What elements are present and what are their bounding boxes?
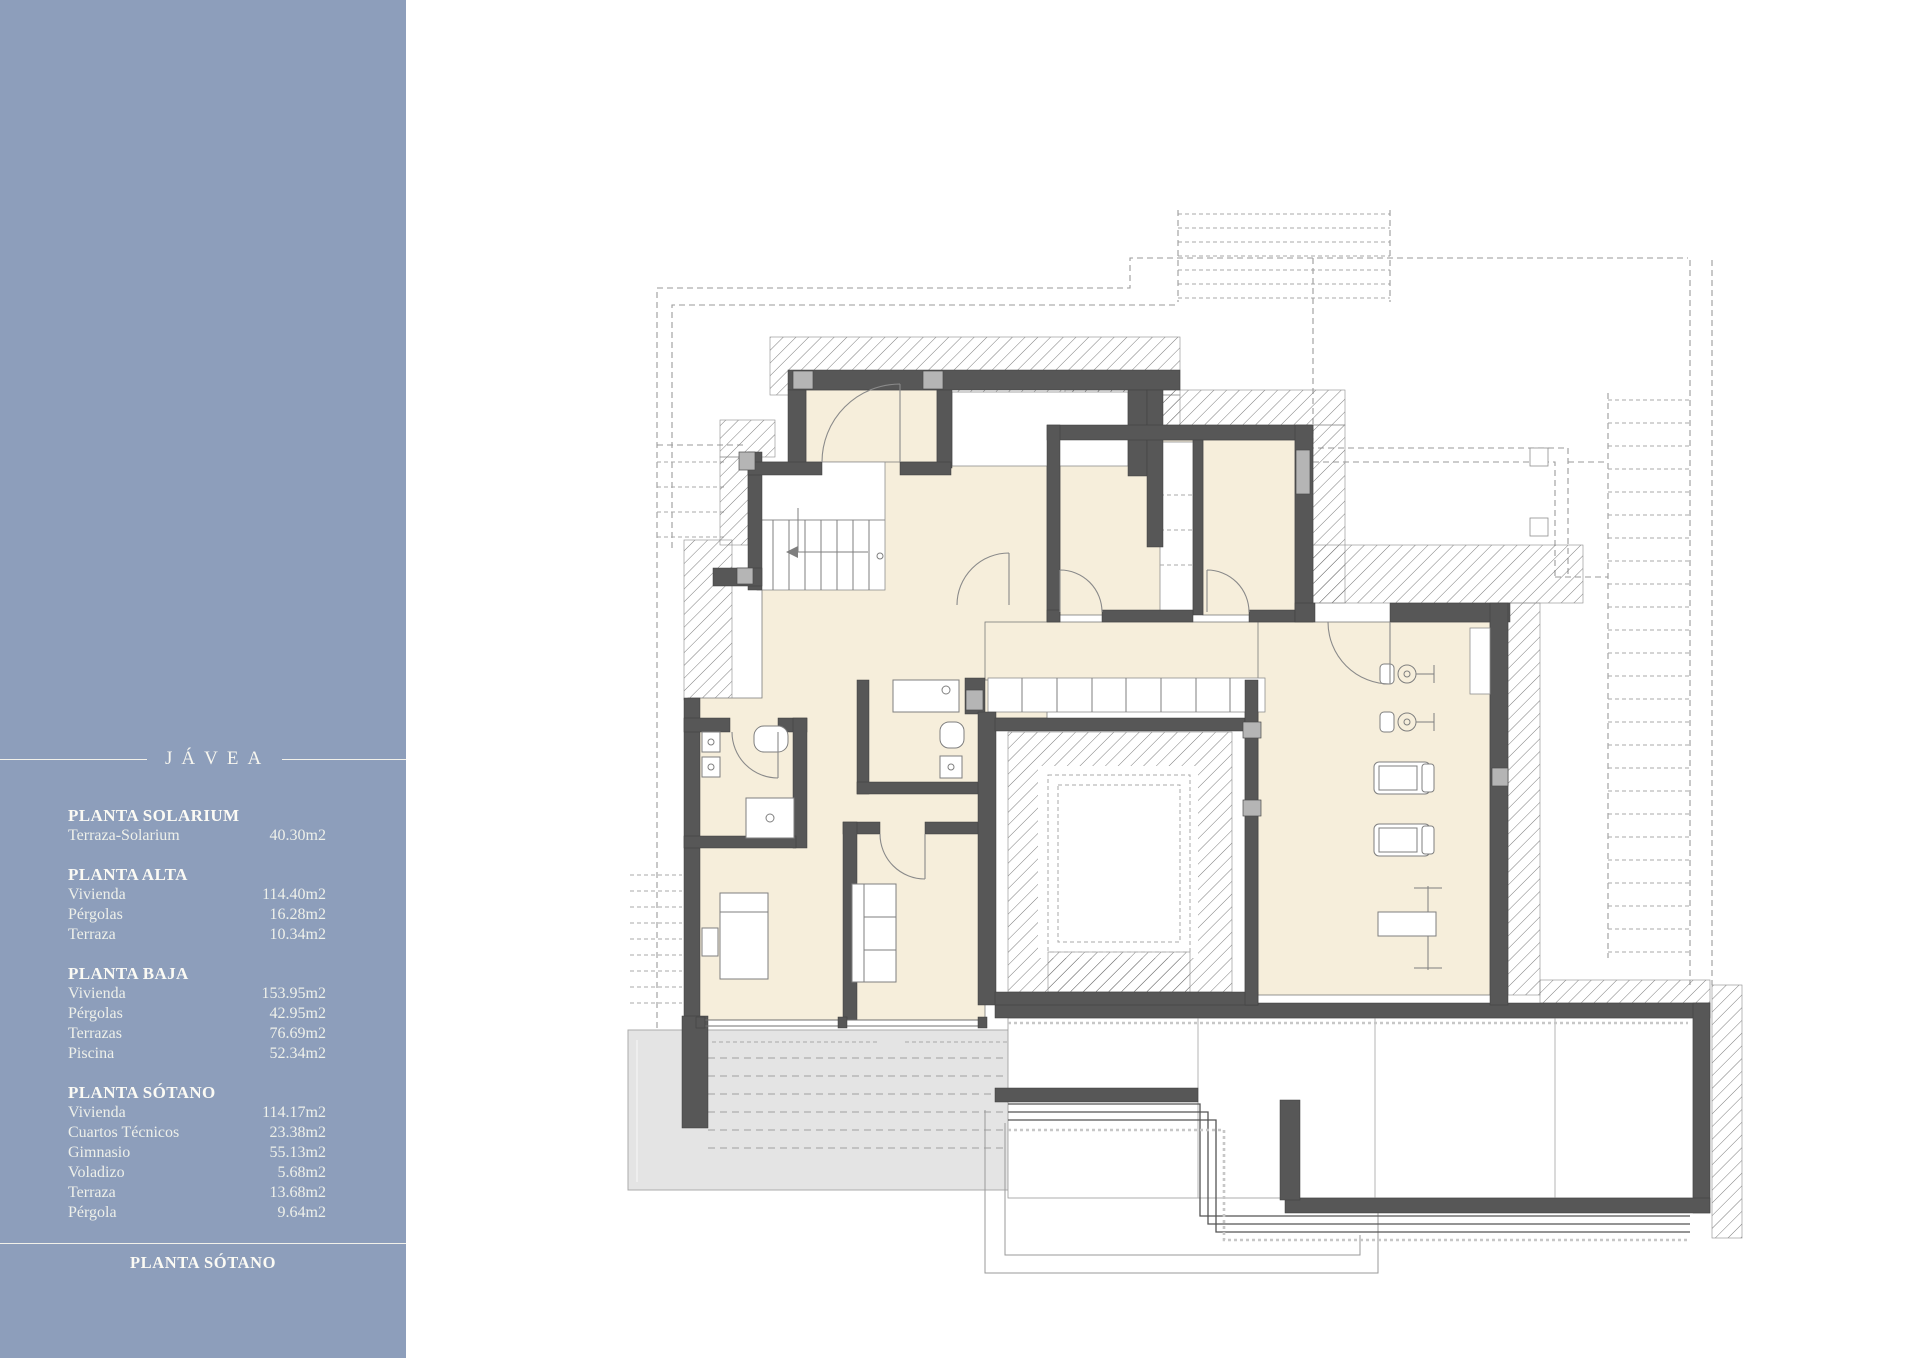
area-label: Terraza: [68, 925, 116, 945]
area-row: Pérgolas 42.95m2: [68, 1004, 326, 1024]
treadmill-icon: [1374, 762, 1434, 794]
area-value: 114.40m2: [262, 885, 326, 905]
area-row: Terraza 13.68m2: [68, 1183, 326, 1203]
area-row: Piscina 52.34m2: [68, 1044, 326, 1064]
area-value: 40.30m2: [270, 826, 326, 846]
section-heading: PLANTA SÓTANO: [68, 1083, 326, 1103]
area-label: Terraza: [68, 1183, 116, 1203]
project-title: JÁVEA: [147, 748, 282, 770]
area-row: Pérgolas 16.28m2: [68, 905, 326, 925]
area-value: 10.34m2: [270, 925, 326, 945]
area-label: Vivienda: [68, 1103, 126, 1123]
area-row: Terraza-Solarium 40.30m2: [68, 826, 326, 846]
area-row: Vivienda 153.95m2: [68, 984, 326, 1004]
area-row: Terrazas 76.69m2: [68, 1024, 326, 1044]
section-heading: PLANTA ALTA: [68, 865, 326, 885]
area-label: Terraza-Solarium: [68, 826, 180, 846]
area-label: Voladizo: [68, 1163, 125, 1183]
area-value: 42.95m2: [270, 1004, 326, 1024]
area-label: Gimnasio: [68, 1143, 130, 1163]
area-row: Gimnasio 55.13m2: [68, 1143, 326, 1163]
area-row: Terraza 10.34m2: [68, 925, 326, 945]
area-value: 13.68m2: [270, 1183, 326, 1203]
area-value: 16.28m2: [270, 905, 326, 925]
area-label: Pérgolas: [68, 905, 123, 925]
area-schedule: PLANTA SOLARIUM Terraza-Solarium 40.30m2…: [68, 806, 326, 1242]
footer-divider: [0, 1243, 406, 1244]
area-value: 153.95m2: [262, 984, 326, 1004]
section-planta-solarium: PLANTA SOLARIUM Terraza-Solarium 40.30m2: [68, 806, 326, 846]
area-row: Pérgola 9.64m2: [68, 1203, 326, 1223]
area-row: Vivienda 114.40m2: [68, 885, 326, 905]
area-row: Voladizo 5.68m2: [68, 1163, 326, 1183]
area-value: 5.68m2: [278, 1163, 326, 1183]
area-row: Cuartos Técnicos 23.38m2: [68, 1123, 326, 1143]
bottom-terraces: [985, 1003, 1710, 1273]
area-label: Vivienda: [68, 984, 126, 1004]
area-value: 55.13m2: [270, 1143, 326, 1163]
courtyard-lightwell: [1008, 732, 1232, 992]
section-planta-alta: PLANTA ALTA Vivienda 114.40m2 Pérgolas 1…: [68, 865, 326, 945]
area-label: Piscina: [68, 1044, 114, 1064]
area-label: Pérgola: [68, 1203, 117, 1223]
section-heading: PLANTA SOLARIUM: [68, 806, 326, 826]
area-label: Terrazas: [68, 1024, 122, 1044]
title-rule-right: [282, 759, 406, 760]
treadmill-icon: [1374, 824, 1434, 856]
area-row: Vivienda 114.17m2: [68, 1103, 326, 1123]
section-planta-baja: PLANTA BAJA Vivienda 153.95m2 Pérgolas 4…: [68, 964, 326, 1064]
project-title-row: JÁVEA: [0, 748, 406, 770]
section-heading: PLANTA BAJA: [68, 964, 326, 984]
section-planta-sotano: PLANTA SÓTANO Vivienda 114.17m2 Cuartos …: [68, 1083, 326, 1223]
current-floor-label: PLANTA SÓTANO: [0, 1253, 406, 1273]
area-value: 23.38m2: [270, 1123, 326, 1143]
floor-plan-sheet: JÁVEA PLANTA SOLARIUM Terraza-Solarium 4…: [0, 0, 1920, 1358]
area-value: 52.34m2: [270, 1044, 326, 1064]
area-value: 9.64m2: [278, 1203, 326, 1223]
area-label: Vivienda: [68, 885, 126, 905]
area-label: Pérgolas: [68, 1004, 123, 1024]
area-value: 114.17m2: [262, 1103, 326, 1123]
title-rule-left: [0, 759, 147, 760]
area-value: 76.69m2: [270, 1024, 326, 1044]
sidebar: JÁVEA PLANTA SOLARIUM Terraza-Solarium 4…: [0, 0, 406, 1358]
area-label: Cuartos Técnicos: [68, 1123, 179, 1143]
